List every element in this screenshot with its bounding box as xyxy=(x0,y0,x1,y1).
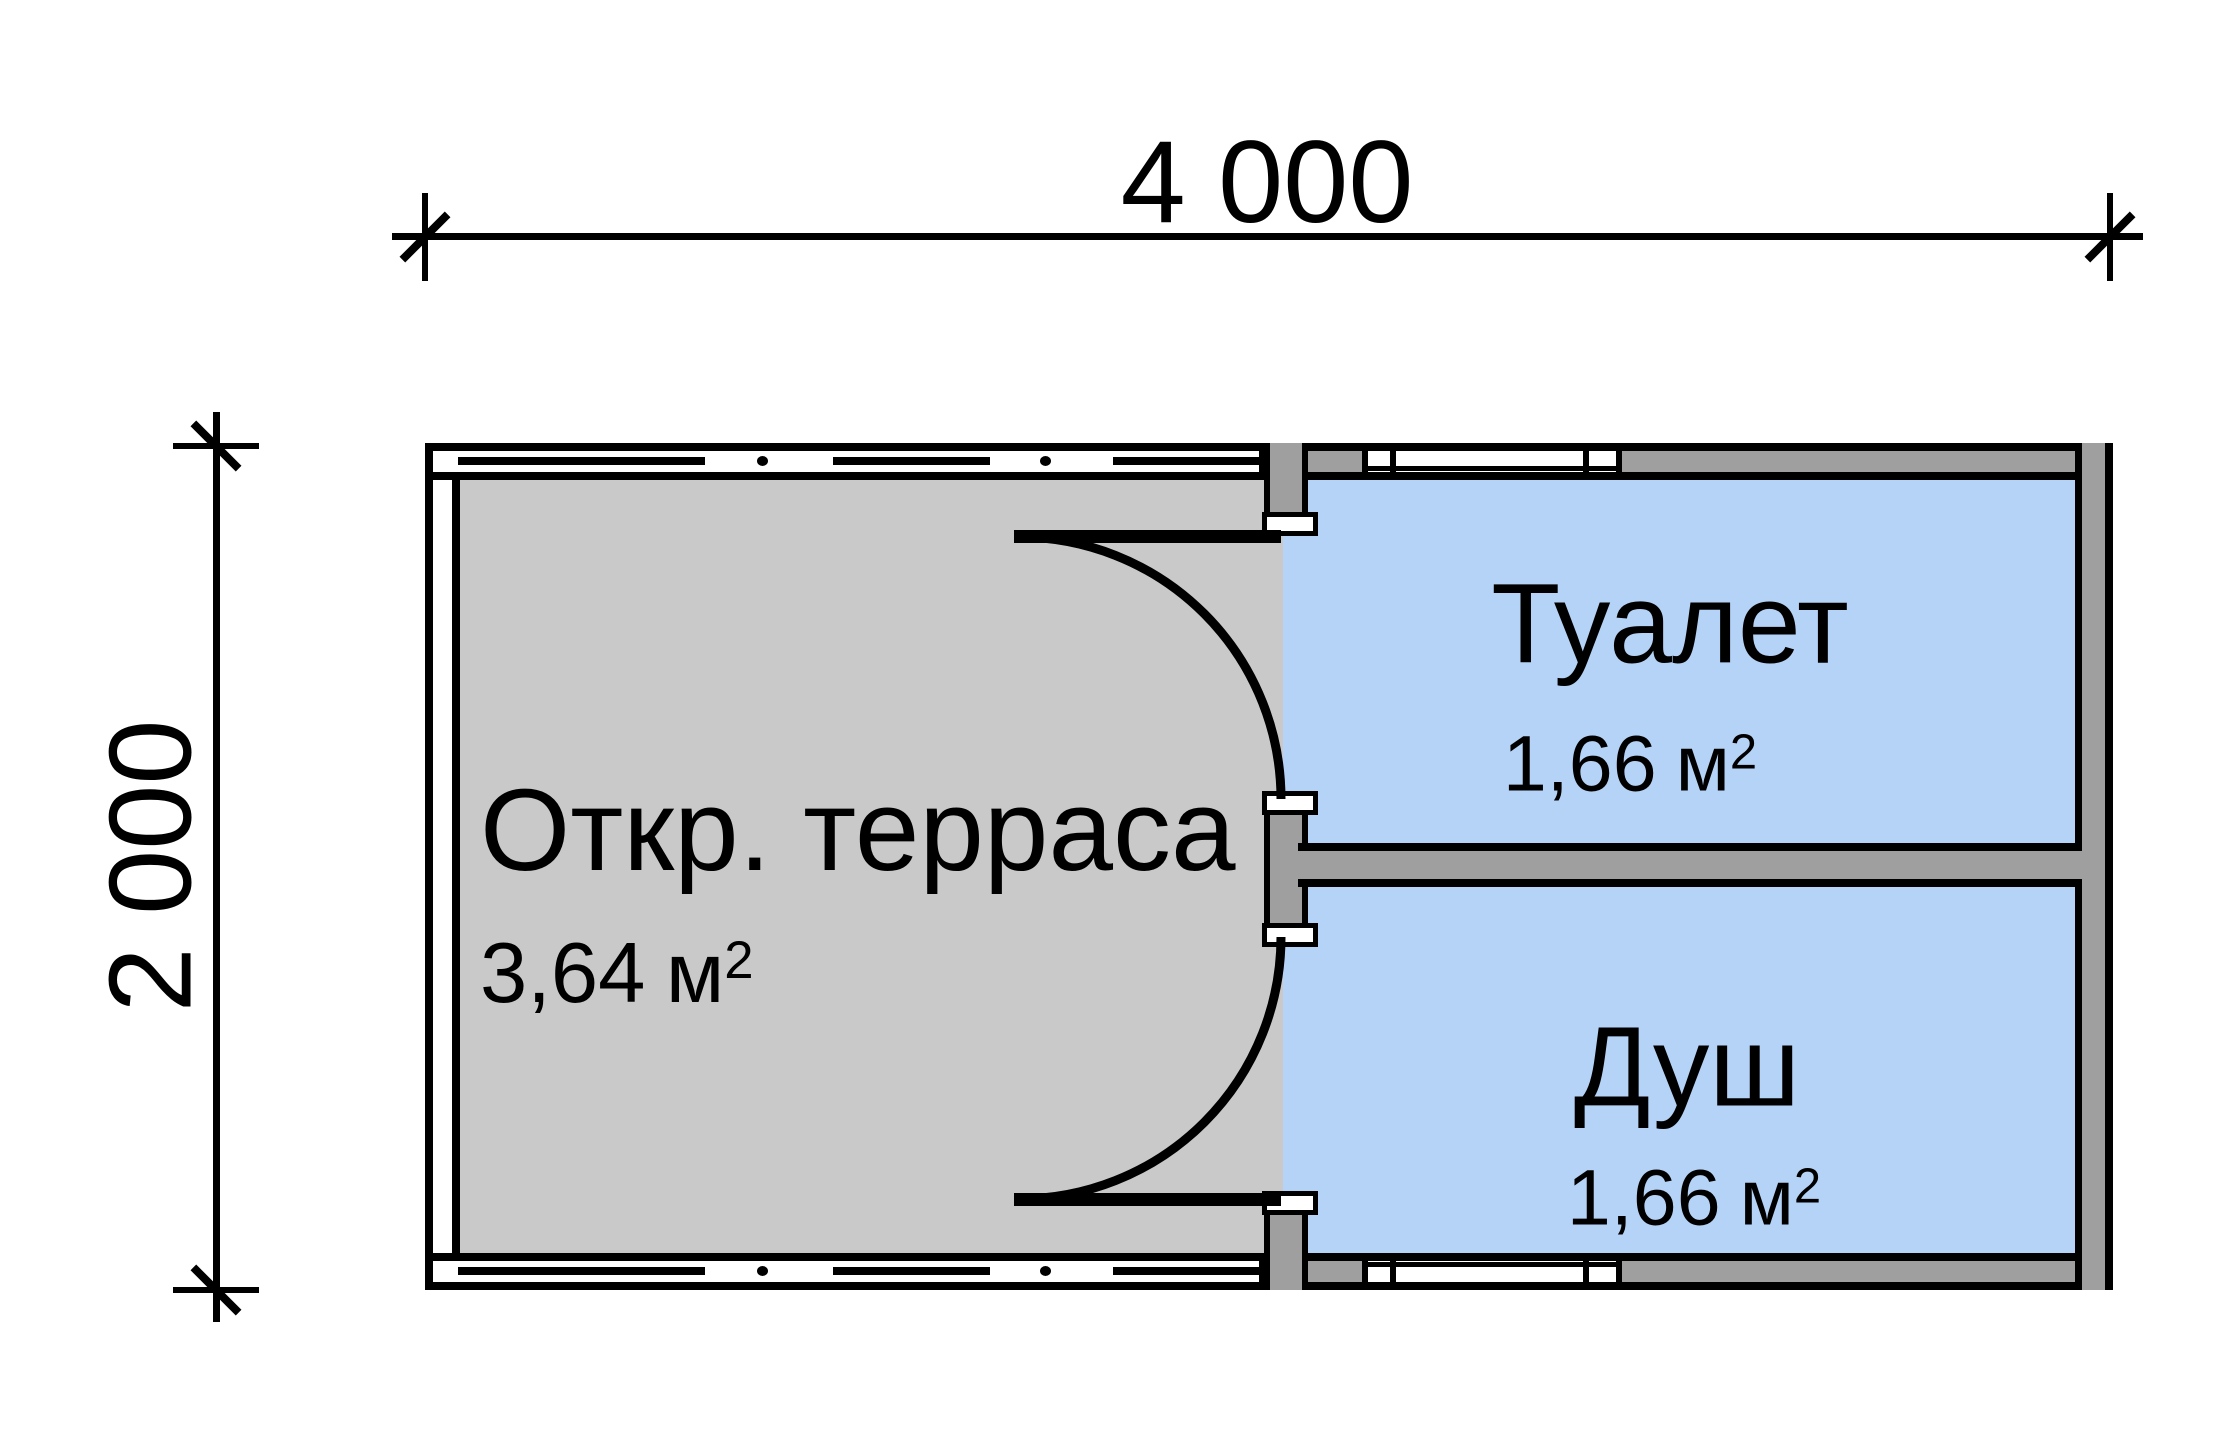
doorway-toilet-opening xyxy=(1283,534,1310,793)
shower-area-value: 1,66 xyxy=(1567,1153,1721,1242)
wall-toilet-shower-divider xyxy=(1298,843,2082,887)
terrace-railing-left xyxy=(425,443,460,1290)
wall-partition-upper xyxy=(1264,443,1308,516)
window-glazing-line xyxy=(1368,1262,1616,1267)
window-shower xyxy=(1362,1255,1622,1288)
terrace-area-value: 3,64 xyxy=(480,926,645,1021)
toilet-area-value: 1,66 xyxy=(1503,719,1657,808)
door-leaf-shower xyxy=(1014,1193,1281,1206)
toilet-label: Туалет xyxy=(1491,568,1849,681)
axis-dash xyxy=(1113,1267,1262,1275)
door-jamb xyxy=(1262,923,1318,947)
axis-dash xyxy=(833,457,990,465)
terrace-area-sup: 2 xyxy=(724,931,753,990)
terrace-label: Откр. терраса xyxy=(480,772,1235,888)
doorway-toilet-opening xyxy=(1258,534,1283,793)
shower-label: Душ xyxy=(1574,1011,1800,1124)
window-glazing-line xyxy=(1368,466,1616,471)
terrace-area: 3,64м2 xyxy=(480,931,754,1016)
door-jamb xyxy=(1262,791,1318,815)
doorway-shower-opening xyxy=(1283,947,1310,1191)
shower-area-unit: м xyxy=(1740,1153,1794,1242)
axis-dash xyxy=(458,1267,705,1275)
window-toilet xyxy=(1362,445,1622,478)
toilet-area: 1,66м2 xyxy=(1503,724,1757,803)
axis-dot xyxy=(1040,1266,1051,1276)
axis-dot xyxy=(1040,456,1051,466)
axis-dash xyxy=(458,457,705,465)
toilet-area-sup: 2 xyxy=(1730,725,1757,779)
terrace-area-unit: м xyxy=(666,926,724,1021)
toilet-area-unit: м xyxy=(1676,719,1730,808)
shower-area-sup: 2 xyxy=(1794,1159,1821,1213)
axis-dot xyxy=(757,1266,768,1276)
dimension-height-label: 2 000 xyxy=(92,720,209,1013)
axis-dash xyxy=(833,1267,990,1275)
dimension-width-label: 4 000 xyxy=(1121,123,1414,240)
floor-plan-canvas: Откр. терраса 3,64м2 Туалет 1,66м2 Душ 1… xyxy=(0,0,2235,1438)
door-leaf-toilet xyxy=(1014,530,1281,543)
doorway-shower-opening xyxy=(1258,947,1283,1191)
axis-dot xyxy=(757,456,768,466)
wall-partition-lower xyxy=(1264,1211,1308,1290)
shower-area: 1,66м2 xyxy=(1567,1158,1821,1237)
axis-dash xyxy=(1113,457,1262,465)
